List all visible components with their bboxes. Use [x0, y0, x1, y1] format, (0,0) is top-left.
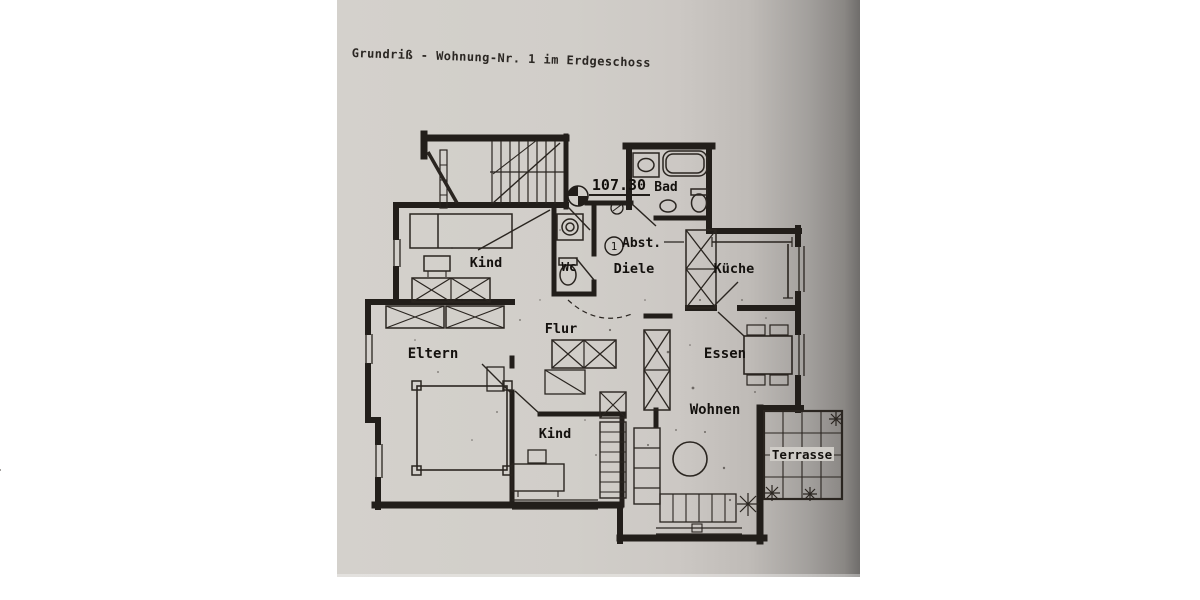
diele-number-marker: 1 — [605, 237, 623, 255]
plant-icon — [803, 487, 817, 501]
scanned-floorplan-page: Grundriß - Wohnung-Nr. 1 im Erdgeschoss — [0, 0, 1200, 600]
wc-fixtures — [557, 214, 583, 285]
room-label-kind-bottom: Kind — [539, 426, 572, 442]
floor-plan-drawing: 107.30 1 Kind Wc Bad Abst. Diele Küche E… — [0, 0, 1200, 600]
room-label-wohnen: Wohnen — [690, 402, 741, 418]
wohnen-furniture — [634, 428, 759, 532]
plant-icon — [829, 412, 843, 426]
kind-bottom-furniture — [512, 392, 626, 498]
center-closet-column — [644, 330, 670, 410]
room-label-terrasse: Terrasse — [772, 447, 833, 462]
room-label-diele: Diele — [614, 261, 655, 277]
room-label-wc: Wc — [561, 259, 576, 274]
diele-number: 1 — [611, 241, 617, 253]
staircase — [428, 140, 564, 208]
room-label-bad: Bad — [654, 180, 677, 195]
room-label-kueche: Küche — [714, 261, 755, 277]
furniture — [386, 151, 843, 532]
room-label-abst: Abst. — [622, 236, 661, 251]
elevation-label: 107.30 — [592, 176, 646, 194]
plant-icon — [764, 485, 780, 501]
plant-icon — [737, 493, 759, 516]
room-label-essen: Essen — [704, 346, 746, 362]
room-label-flur: Flur — [545, 321, 578, 337]
abst-closet — [664, 230, 716, 308]
room-label-eltern: Eltern — [408, 346, 459, 362]
essen-furniture — [744, 325, 792, 385]
room-label-kind-top: Kind — [470, 255, 503, 271]
